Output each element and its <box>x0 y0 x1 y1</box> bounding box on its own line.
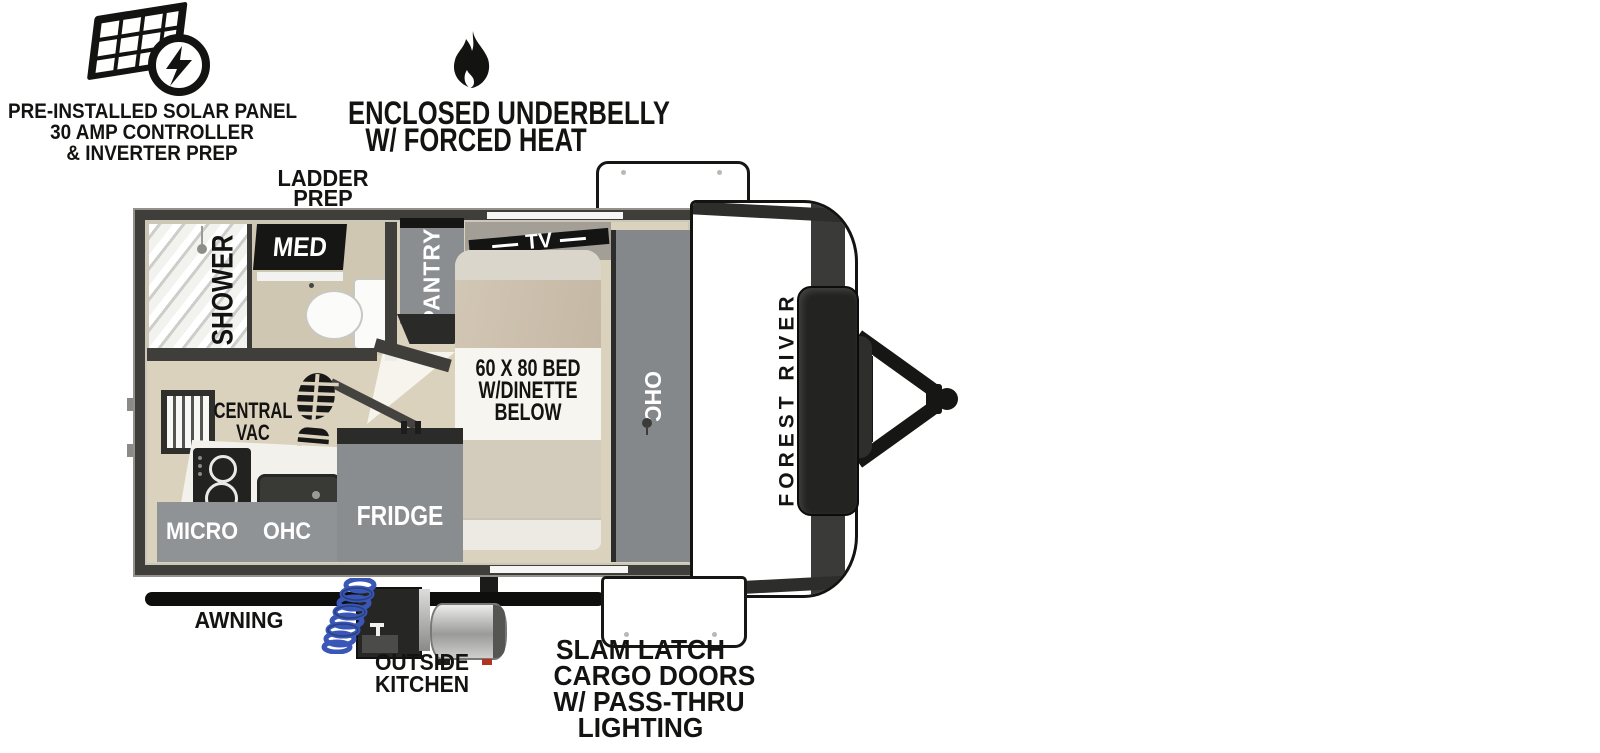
tv-label: TV <box>525 234 553 250</box>
faucet-icon <box>312 491 320 499</box>
bed-head <box>455 250 601 280</box>
bed-lower <box>455 440 601 520</box>
underbelly-callout-label: ENCLOSED UNDERBELLY W/ FORCED HEAT <box>348 100 604 154</box>
toilet-bowl <box>305 290 363 340</box>
med-cabinet: MED <box>253 224 347 270</box>
propane-cover <box>797 286 859 516</box>
kitchen-mount-plate <box>419 589 430 651</box>
central-vac-label: CENTRAL VAC <box>211 400 295 444</box>
kitchen-cabinet-band: MICRO OHC <box>157 502 339 562</box>
vent-icon <box>642 418 652 428</box>
outside-kitchen-label: OUTSIDE KITCHEN <box>363 651 481 695</box>
cargo-doors-label: SLAM LATCH CARGO DOORS W/ PASS-THRU LIGH… <box>554 637 728 741</box>
tv-arm <box>492 242 518 247</box>
ladder-prep-label: LADDER PREP <box>265 168 381 208</box>
bed-label: 60 X 80 BED W/DINETTE BELOW <box>473 358 583 424</box>
solar-callout-label: PRE-INSTALLED SOLAR PANEL 30 AMP CONTROL… <box>8 101 296 164</box>
ohc-kitchen-label: OHC <box>260 518 314 546</box>
top-wall-window <box>487 212 623 219</box>
fridge-label: FRIDGE <box>348 500 451 532</box>
vent-icon <box>646 428 648 435</box>
shower-area: SHOWER <box>197 226 249 354</box>
flame-icon <box>446 30 498 96</box>
floorplan-body: SHOWER MED PANTRY TV <box>135 210 700 575</box>
bottom-wall-window <box>490 566 628 573</box>
bed: 60 X 80 BED W/DINETTE BELOW <box>455 250 601 550</box>
bathroom-wall <box>147 348 377 361</box>
fridge: FRIDGE <box>337 428 463 562</box>
water-hose-coil <box>314 578 378 654</box>
micro-label: MICRO <box>162 518 243 546</box>
overhead-cabinet-bedside: OHC <box>611 230 690 562</box>
fridge-handle <box>401 421 407 434</box>
pantry-label: PANTRY <box>419 227 446 325</box>
fridge-handle <box>415 421 421 434</box>
awning-label: AWNING <box>184 607 295 634</box>
ohc-bedside-label: OHC <box>640 370 667 421</box>
med-shelf <box>257 272 343 281</box>
solar-panel-icon <box>86 2 214 100</box>
bed-blanket <box>455 280 601 348</box>
med-cabinet-label: MED <box>272 232 329 263</box>
tv-arm <box>560 236 586 241</box>
shower-label: SHOWER <box>206 235 240 346</box>
bed-foot <box>455 518 601 550</box>
rv-floorplan-diagram: PRE-INSTALLED SOLAR PANEL 30 AMP CONTROL… <box>0 0 1600 753</box>
sink-drain-dot <box>309 283 314 288</box>
valve-red-mark <box>482 659 492 665</box>
